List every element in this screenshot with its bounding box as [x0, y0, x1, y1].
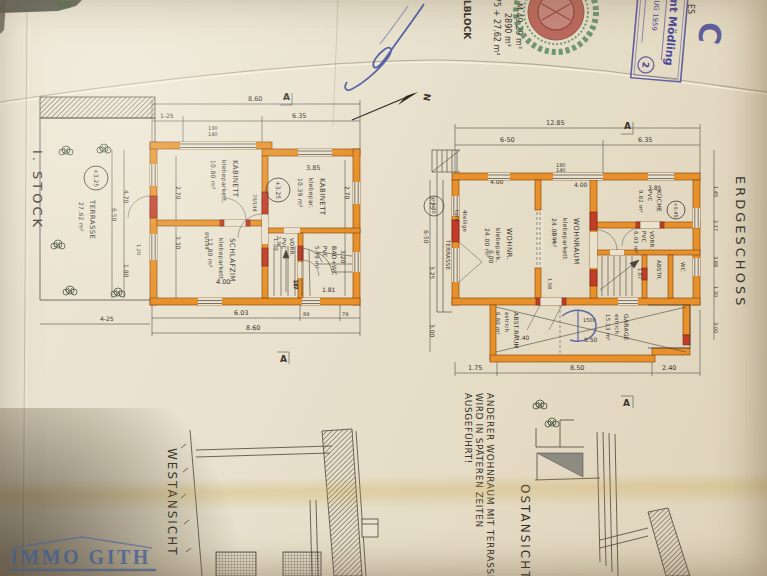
- svg-text:türe: türe: [454, 210, 460, 222]
- dim: 1.87: [637, 268, 643, 279]
- svg-text:6.60 m²: 6.60 m²: [495, 312, 501, 335]
- letter-mark: C: [691, 19, 729, 47]
- terrace-area: 27.62 m²: [78, 202, 85, 232]
- dim: 85/194: [204, 232, 210, 250]
- svg-text:9.62 m²: 9.62 m²: [638, 190, 644, 213]
- terrace-label: TERRASSE: [445, 239, 451, 270]
- dim: 6.00: [488, 250, 495, 264]
- pen-note-text: 1500: [583, 317, 596, 323]
- terrace-level: +3.25: [93, 169, 100, 188]
- svg-text:ABST.RAUM: ABST.RAUM: [513, 312, 520, 349]
- svg-text:PVC: PVC: [641, 231, 647, 243]
- dim: 3.00: [429, 324, 436, 338]
- svg-text:estrich: estrich: [504, 312, 510, 332]
- right-plan-title: ERDGESCHOSS: [733, 176, 748, 308]
- dim: 4.00: [216, 278, 230, 286]
- dim: 2.94: [552, 232, 558, 243]
- dim: 8.60: [246, 324, 260, 332]
- svg-text:ANDERER WOHNRAUM MIT TERRASSE: ANDERER WOHNRAUM MIT TERRASSE: [485, 393, 495, 576]
- left-plan-title: I. STOCK: [30, 150, 45, 230]
- signature: [345, 4, 424, 90]
- right-plan-annex: [496, 305, 690, 355]
- svg-text:KABINETT: KABINETT: [231, 160, 239, 198]
- svg-text:GARAGE: GARAGE: [623, 314, 630, 341]
- left-floor-plan: I. STOCK 8.60 1-25 6.35 130 140 2.70 3.3…: [30, 92, 360, 364]
- room-label-abstellraum: ABST.RAUM estrich 6.60 m²: [495, 312, 520, 349]
- dim: 3.30: [175, 236, 182, 250]
- dim: 140: [208, 131, 218, 137]
- dim: 2.70: [344, 186, 351, 200]
- room-label-kueche: KÜCHE PVC 9.62 m²: [638, 190, 663, 213]
- dim: 6.35: [292, 112, 306, 120]
- svg-text:VORR.: VORR.: [289, 238, 295, 256]
- section-mark-a: A: [283, 92, 290, 102]
- paper-creases: [0, 0, 767, 576]
- dim: 5.50: [584, 336, 598, 343]
- dim: 6.03: [234, 309, 248, 317]
- right-floor-plan: ERDGESCHOSS 12.85 6-50 6.35 4.00 4.00 18…: [423, 119, 748, 408]
- dim: 2.70: [175, 186, 182, 200]
- floor-level: +3.25: [275, 181, 282, 200]
- svg-text:KÜCHE: KÜCHE: [656, 190, 663, 212]
- svg-text:klebeparkett.: klebeparkett.: [220, 160, 228, 204]
- dim: 1.80: [123, 264, 130, 278]
- dim: 6-50: [423, 230, 430, 244]
- dim: 12.85: [546, 119, 565, 127]
- dim: 3.25: [429, 266, 436, 280]
- left-plan-walls: [150, 142, 360, 305]
- dim: 2.40: [516, 334, 530, 341]
- svg-text:PVC: PVC: [322, 246, 328, 258]
- section-mark-a: A: [280, 354, 287, 364]
- room-label-kabinett-2: KABINETT klebepar. 10.39 m²: [297, 178, 326, 216]
- approval-stamp: Amt Mödling AUG 1959 Bml. 2: [631, 0, 690, 82]
- section-mark-a: A: [623, 398, 630, 408]
- north-arrow: N: [352, 92, 432, 120]
- svg-text:WOHNR.: WOHNR.: [505, 228, 513, 260]
- dim: 4-25: [100, 315, 114, 322]
- svg-text:klebeparkett.: klebeparkett.: [217, 238, 225, 282]
- dim: 6-50: [500, 136, 515, 144]
- dim: 1.81: [322, 286, 336, 293]
- svg-text:10.80 m²: 10.80 m²: [210, 160, 217, 190]
- future-room-note: ANDERER WOHNRAUM MIT TERRASSE WIRD IN SP…: [463, 393, 495, 576]
- area-line-plot: 2890 m²: [503, 13, 512, 47]
- svg-text:15.13 m²: 15.13 m²: [605, 314, 611, 341]
- dim: 2.36: [276, 236, 282, 247]
- svg-text:WOHNRAUM: WOHNRAUM: [572, 218, 580, 265]
- dim: 1.58: [547, 278, 553, 289]
- dim: 89: [303, 311, 309, 317]
- terrace-level: +0.30: [431, 198, 437, 213]
- svg-text:VORR.: VORR.: [649, 231, 655, 249]
- dim: 1.30: [713, 286, 719, 297]
- dim: 6.50: [111, 208, 118, 222]
- dim: 79: [342, 311, 348, 317]
- svg-text:klebepar.: klebepar.: [307, 178, 315, 208]
- kitchen-level: +0.45: [673, 202, 679, 217]
- room-label-abstr: ABSTR.: [656, 260, 662, 281]
- dim: 3.85: [306, 164, 320, 172]
- svg-text:estrich: estrich: [614, 314, 620, 334]
- svg-text:klebeparkett: klebeparkett: [561, 218, 569, 260]
- stamp-number: 2: [640, 61, 651, 68]
- dim: 8.50: [570, 364, 584, 372]
- dim: 6.35: [638, 136, 652, 144]
- terrace-name: TERRASSE: [88, 199, 96, 239]
- dim: 2.17: [713, 220, 719, 231]
- room-label-kabinett-1: KABINETT klebeparkett. 10.80 m²: [210, 160, 239, 204]
- photo-edge: [0, 0, 82, 34]
- room-label-wc: WC: [680, 262, 686, 272]
- drawing-layer: ES LBLOCK M 49.29 m³ 2890 m² 75 + 27.62 …: [0, 0, 767, 576]
- dim: 4.00: [574, 181, 588, 188]
- svg-text:10.39 m²: 10.39 m²: [297, 178, 304, 208]
- dim: 1-25: [160, 112, 174, 119]
- room-label-bad: BAD+WC PVC 5.79 m²: [314, 246, 338, 276]
- dim: 4.70: [123, 190, 130, 204]
- svg-text:BAD+WC: BAD+WC: [331, 246, 338, 276]
- room-label-garage: GARAGE estrich 15.13 m²: [605, 314, 630, 341]
- dim: 3.20: [340, 250, 347, 264]
- block-text: LBLOCK: [462, 0, 472, 40]
- stair-dim: 197: [293, 280, 299, 290]
- svg-text:AUSGEFÜHRT!: AUSGEFÜHRT!: [463, 393, 473, 464]
- dim: 3.00: [713, 322, 719, 333]
- svg-text:6.03 m²: 6.03 m²: [633, 231, 639, 254]
- north-label: N: [421, 93, 432, 102]
- west-elevation-label: WESTANSICHT: [165, 448, 179, 557]
- dim: 3.88: [713, 256, 719, 267]
- dim: 1.20: [136, 244, 142, 255]
- dim: 1.75: [468, 364, 482, 372]
- svg-text:5.79 m²: 5.79 m²: [314, 246, 320, 269]
- left-plan-terrace: +3.25 TERRASSE 27.62 m²: [40, 97, 155, 300]
- east-elevation-label: OSTANSICHT: [518, 484, 532, 576]
- dim: 2.40: [662, 364, 676, 372]
- svg-text:4teilige: 4teilige: [461, 210, 468, 233]
- dim: 8.60: [248, 95, 262, 103]
- plan-sheet: ES LBLOCK M 49.29 m³ 2890 m² 75 + 27.62 …: [0, 0, 767, 576]
- section-mark-a: A: [624, 121, 631, 131]
- svg-text:PVC: PVC: [647, 190, 653, 202]
- svg-text:KABINETT: KABINETT: [318, 178, 326, 216]
- header-area: ES LBLOCK M 49.29 m³ 2890 m² 75 + 27.62 …: [345, 0, 729, 120]
- east-elevation: OSTANSICHT ANDERER WOHNRAUM MIT TERRASSE…: [463, 393, 690, 576]
- dim: 1.45: [713, 186, 719, 197]
- dim: 140: [556, 167, 566, 173]
- stamp-date: AUG 1959: [650, 0, 661, 31]
- west-elevation: WESTANSICHT: [165, 429, 378, 576]
- area-line-sum: 75 + 27.62 m²: [492, 0, 501, 55]
- stamp-office: Amt Mödling: [662, 0, 682, 66]
- revenue-stamp: [516, 0, 596, 52]
- right-plan-stairs: [600, 256, 639, 296]
- svg-text:WIRD IN SPÄTEREN ZEITEN: WIRD IN SPÄTEREN ZEITEN: [474, 393, 484, 528]
- dim: 70/194: [252, 194, 258, 212]
